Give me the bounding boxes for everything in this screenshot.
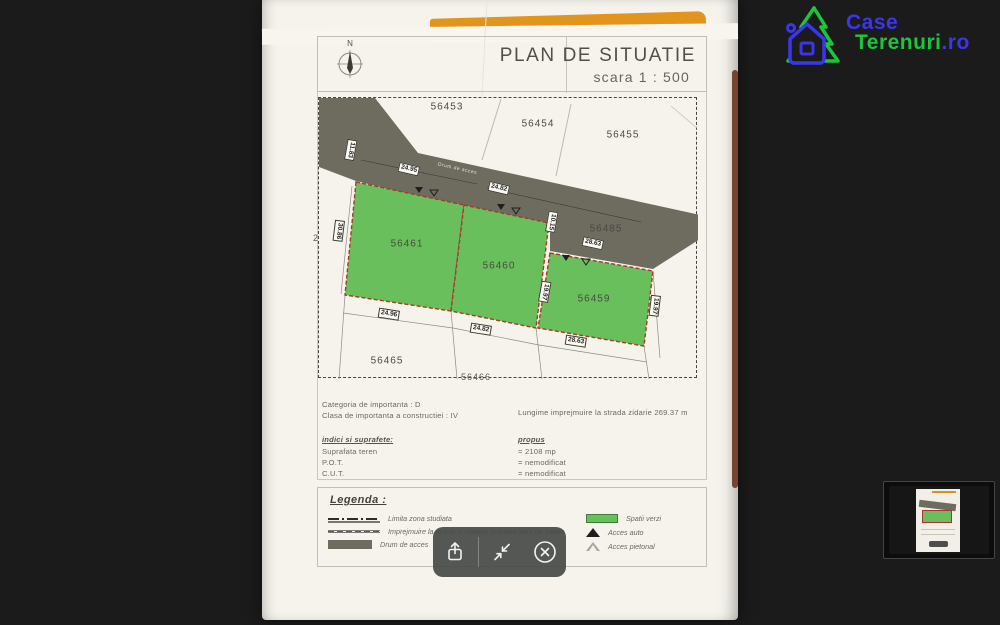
page-edge-shadow (732, 70, 738, 488)
north-label: N (332, 39, 368, 48)
thumbnail-page (916, 489, 960, 552)
thumbnail-panel (889, 486, 989, 554)
parcel-label-56466: 56466 (461, 372, 491, 382)
logo-icon (780, 3, 844, 65)
info-cut: C.U.T. (322, 468, 512, 479)
close-icon (532, 539, 558, 565)
red-dashed-line-symbol (328, 530, 380, 533)
compass-rose: N (332, 39, 368, 91)
logo-word-terenuri: Terenuri (855, 31, 941, 54)
site-logo[interactable]: Case Terenuri.ro (780, 3, 990, 65)
thumbnail-preview[interactable] (883, 481, 995, 559)
info-pot: P.O.T. (322, 457, 512, 468)
green-swatch-symbol (586, 514, 618, 523)
plan-scale: scara 1 : 500 (466, 69, 690, 85)
compass-icon (335, 48, 365, 82)
thumbnail-line (921, 534, 955, 535)
close-button[interactable] (525, 532, 565, 572)
parcel-label-56465: 56465 (371, 356, 404, 367)
legend-label: Spatii verzi (626, 514, 661, 523)
share-icon (443, 540, 467, 564)
info-class: Clasa de importanta a constructiei : IV (322, 410, 512, 421)
house-icon (788, 24, 825, 63)
propus-heading: propus (518, 434, 700, 445)
legend-heading: Legenda : (330, 494, 386, 506)
legend-label: Limita zona studiata (388, 514, 452, 523)
minimize-icon (490, 540, 514, 564)
info-suprafata: Suprafata teren (322, 446, 512, 457)
minimize-button[interactable] (482, 532, 522, 572)
legend-label: Acces auto (608, 528, 644, 537)
thumbnail-folder-strip (932, 491, 956, 493)
thumbnail-parcels (922, 510, 952, 523)
map-drawing (319, 98, 698, 379)
share-button[interactable] (435, 532, 475, 572)
propus-value-2: = nemodificat (518, 457, 700, 468)
outline-triangle-symbol (586, 542, 600, 551)
logo-text: Case Terenuri.ro (846, 13, 970, 53)
toolbar-divider (478, 537, 479, 567)
parcel-label-56459: 56459 (578, 294, 611, 305)
parcel-label-56485: 56485 (590, 224, 623, 235)
parcel-label-56454: 56454 (522, 119, 555, 130)
dashdot-line-symbol (328, 518, 380, 520)
indici-heading: indici si suprafete: (322, 434, 512, 445)
legend-label: Acces pietonal (608, 542, 655, 551)
info-fence-length: Lungime imprejmuire la strada zidarie 26… (518, 407, 700, 418)
site-plan-map: Drum de acces 56453 56454 56455 56485 56… (318, 97, 697, 378)
logo-suffix-ro: .ro (941, 31, 969, 54)
page-title: PLAN DE SITUATIE (466, 45, 696, 67)
parcel-label-56461: 56461 (391, 239, 424, 250)
thumbnail-toolbar (929, 541, 948, 547)
propus-value-3: = nemodificat (518, 468, 700, 479)
filled-triangle-symbol (586, 528, 600, 537)
viewer-toolbar (433, 527, 566, 577)
legend-label: Drum de acces (380, 540, 428, 549)
parcel-label-56453: 56453 (431, 102, 464, 113)
road-swatch-symbol (328, 540, 372, 549)
thumbnail-line (921, 529, 955, 530)
plan-header: N PLAN DE SITUATIE scara 1 : 500 (317, 36, 707, 92)
parcel-label-partial: 2 (313, 233, 319, 243)
parcel-label-56455: 56455 (607, 130, 640, 141)
viewer-background: N PLAN DE SITUATIE scara 1 : 500 (0, 0, 1000, 625)
parcel-label-56460: 56460 (483, 261, 516, 272)
propus-value-1: = 2108 mp (518, 446, 700, 457)
info-category: Categoria de importanta : D (322, 399, 512, 410)
